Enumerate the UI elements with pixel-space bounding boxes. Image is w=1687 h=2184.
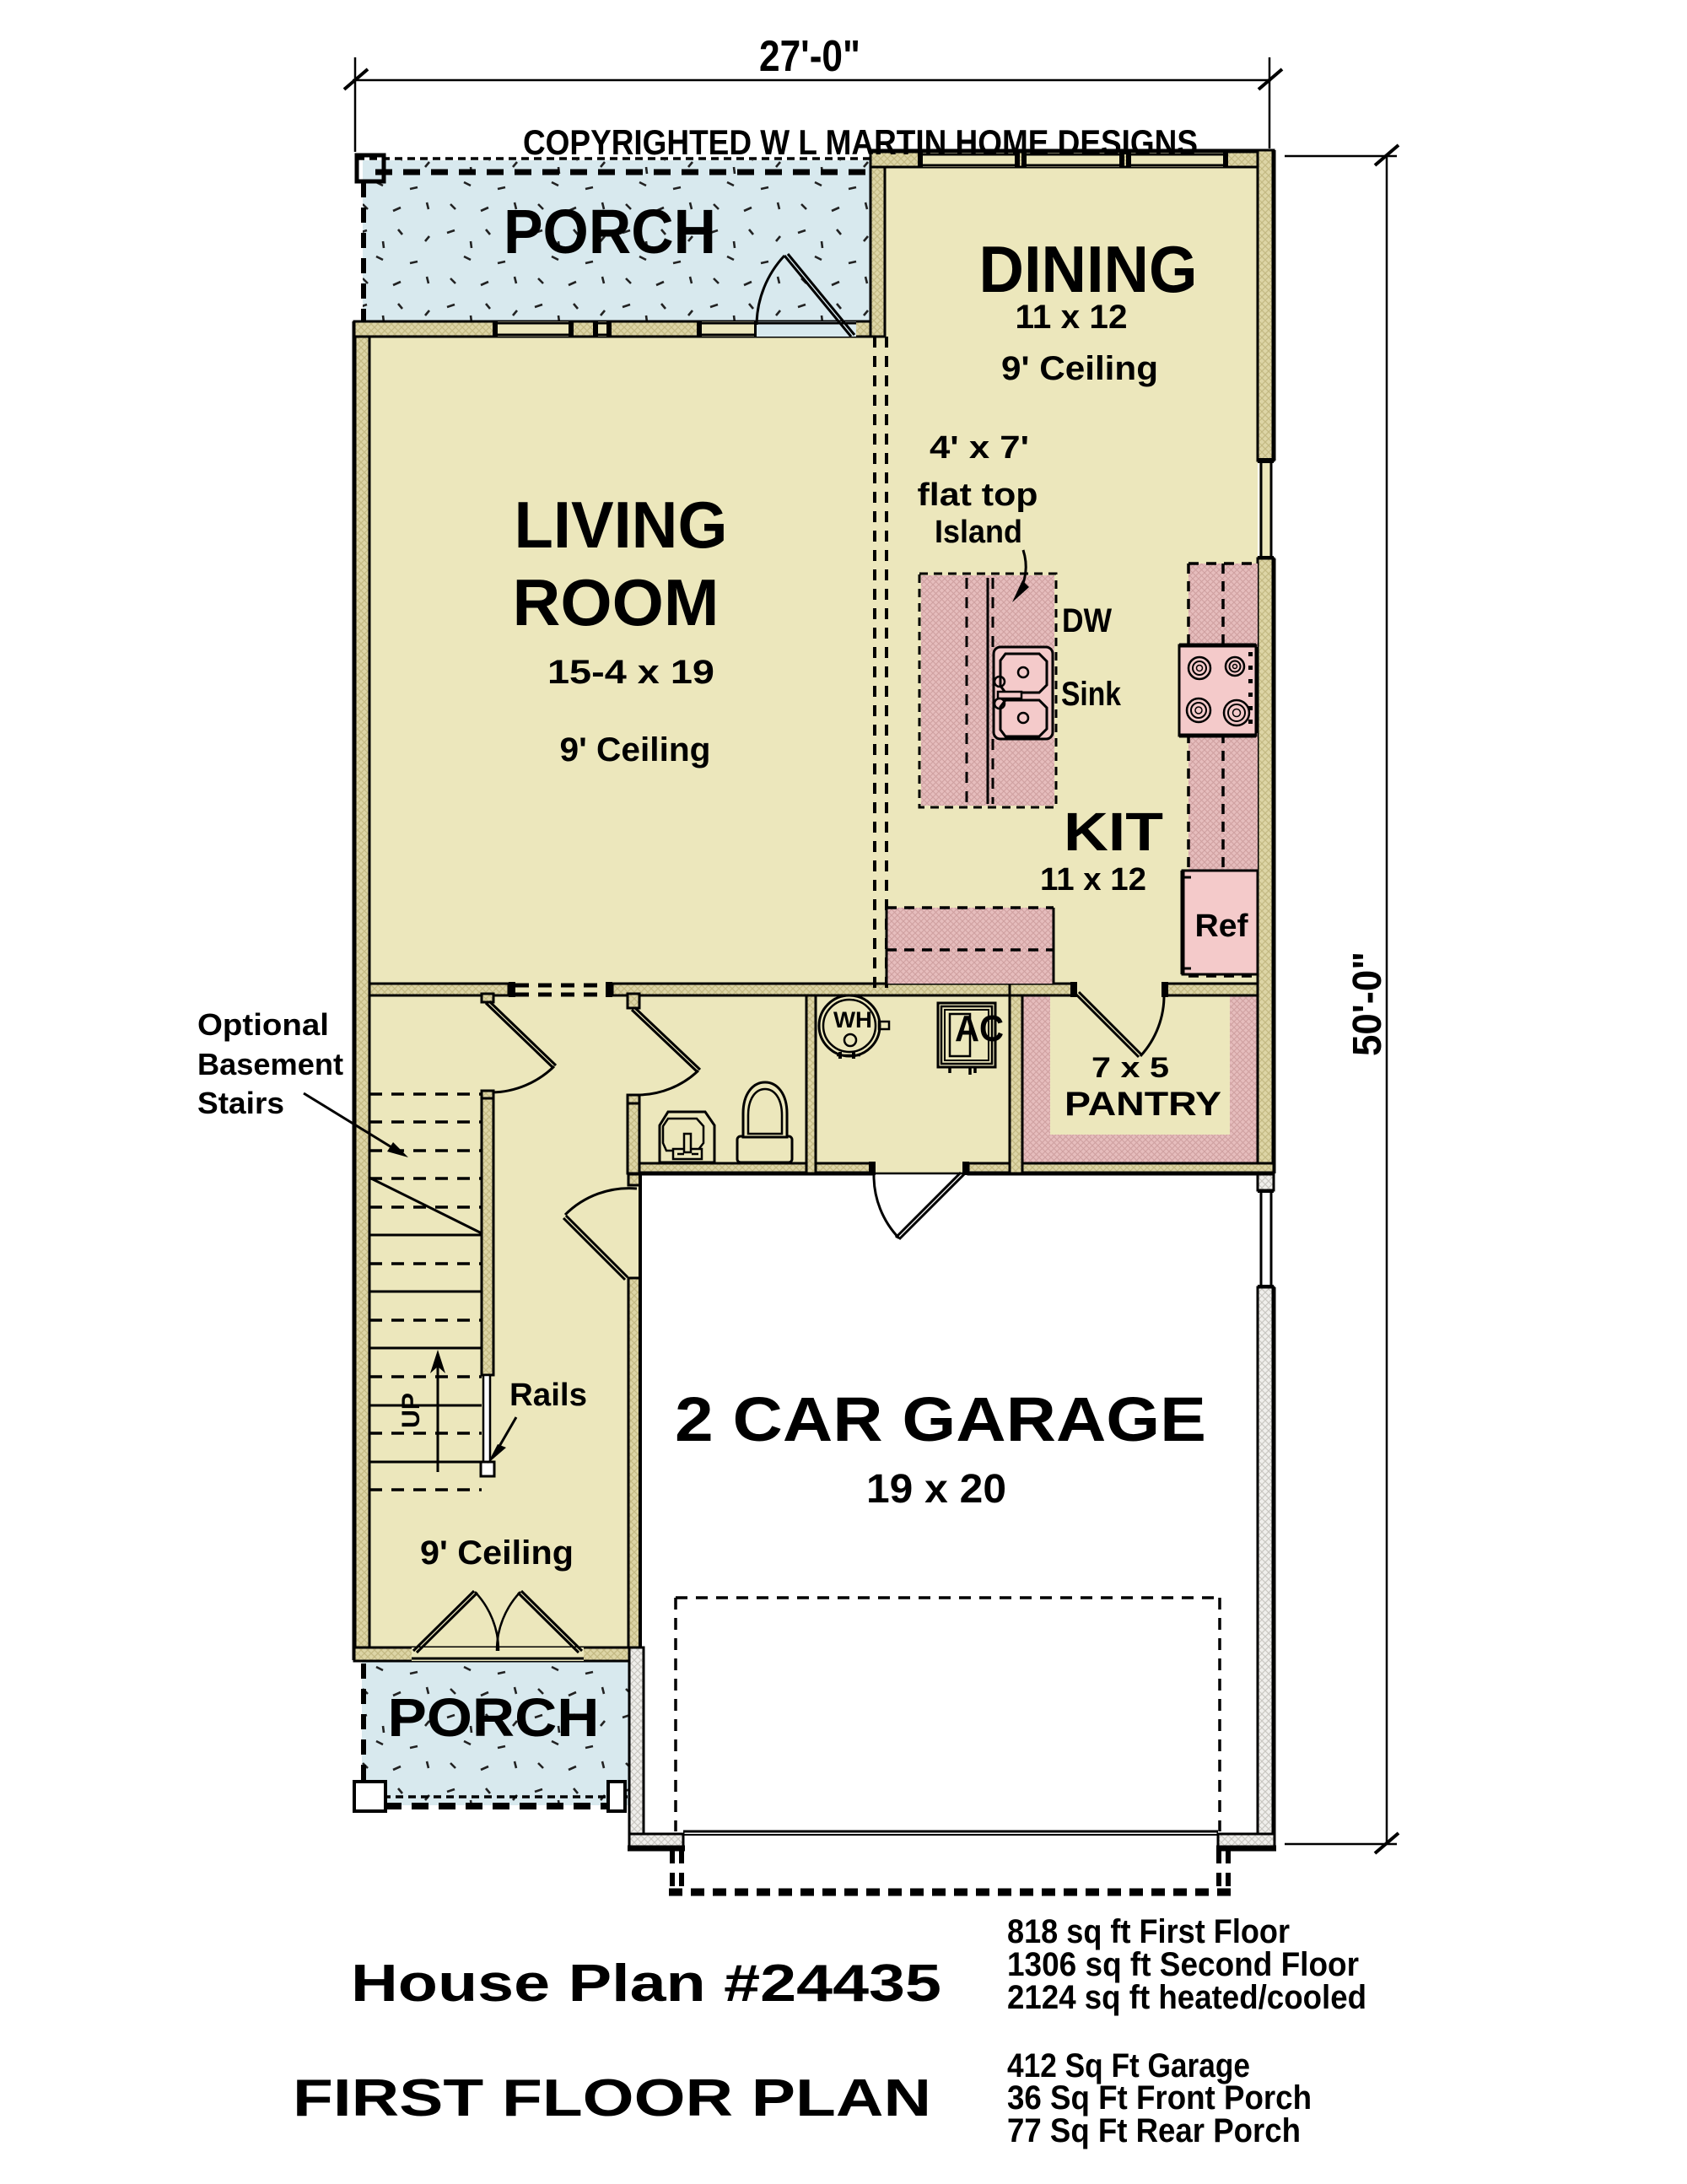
svg-text:Rails: Rails	[509, 1378, 587, 1413]
svg-text:COPYRIGHTED W L MARTIN HOME DE: COPYRIGHTED W L MARTIN HOME DESIGNS	[523, 122, 1198, 162]
svg-text:7 x 5: 7 x 5	[1091, 1052, 1169, 1084]
svg-text:LIVING: LIVING	[515, 488, 728, 562]
svg-text:9' Ceiling: 9' Ceiling	[1001, 350, 1158, 387]
svg-text:PANTRY: PANTRY	[1064, 1086, 1221, 1123]
svg-text:2124 sq ft heated/cooled: 2124 sq ft heated/cooled	[1007, 1979, 1366, 2016]
svg-text:15-4 x 19: 15-4 x 19	[547, 654, 714, 691]
svg-text:flat top: flat top	[918, 477, 1038, 513]
svg-text:Ref: Ref	[1195, 909, 1248, 944]
svg-text:9' Ceiling: 9' Ceiling	[420, 1534, 574, 1572]
svg-text:Basement: Basement	[197, 1047, 343, 1081]
svg-text:11 x 12: 11 x 12	[1016, 299, 1128, 336]
svg-text:Sink: Sink	[1061, 676, 1122, 713]
svg-text:818 sq ft First Floor: 818 sq ft First Floor	[1007, 1913, 1290, 1950]
svg-text:36 Sq Ft Front Porch: 36 Sq Ft Front Porch	[1007, 2079, 1312, 2117]
svg-text:KIT: KIT	[1064, 801, 1163, 862]
svg-text:DW: DW	[1062, 602, 1112, 639]
svg-text:11 x 12: 11 x 12	[1040, 862, 1146, 898]
svg-text:77 Sq Ft Rear Porch: 77 Sq Ft Rear Porch	[1007, 2112, 1301, 2149]
svg-text:DINING: DINING	[979, 232, 1198, 306]
svg-text:1306 sq ft Second Floor: 1306 sq ft Second Floor	[1007, 1946, 1359, 1983]
svg-text:19 x 20: 19 x 20	[866, 1467, 1006, 1512]
svg-text:WH: WH	[833, 1007, 872, 1033]
svg-text:AC: AC	[955, 1008, 1004, 1049]
svg-text:PORCH: PORCH	[388, 1687, 600, 1748]
svg-text:Island: Island	[935, 515, 1022, 550]
svg-text:Optional: Optional	[197, 1007, 329, 1042]
svg-text:FIRST FLOOR PLAN: FIRST FLOOR PLAN	[293, 2069, 931, 2127]
svg-text:4' x 7': 4' x 7'	[930, 430, 1029, 466]
svg-text:27'-0": 27'-0"	[759, 32, 860, 81]
svg-text:UP: UP	[397, 1393, 425, 1428]
svg-text:ROOM: ROOM	[513, 565, 720, 639]
svg-text:2 CAR GARAGE: 2 CAR GARAGE	[675, 1384, 1206, 1454]
svg-text:PORCH: PORCH	[504, 197, 716, 267]
svg-text:Stairs: Stairs	[197, 1086, 284, 1120]
svg-text:9' Ceiling: 9' Ceiling	[560, 731, 711, 768]
svg-text:House Plan #24435: House Plan #24435	[351, 1955, 941, 2013]
svg-text:50'-0": 50'-0"	[1345, 952, 1390, 1056]
